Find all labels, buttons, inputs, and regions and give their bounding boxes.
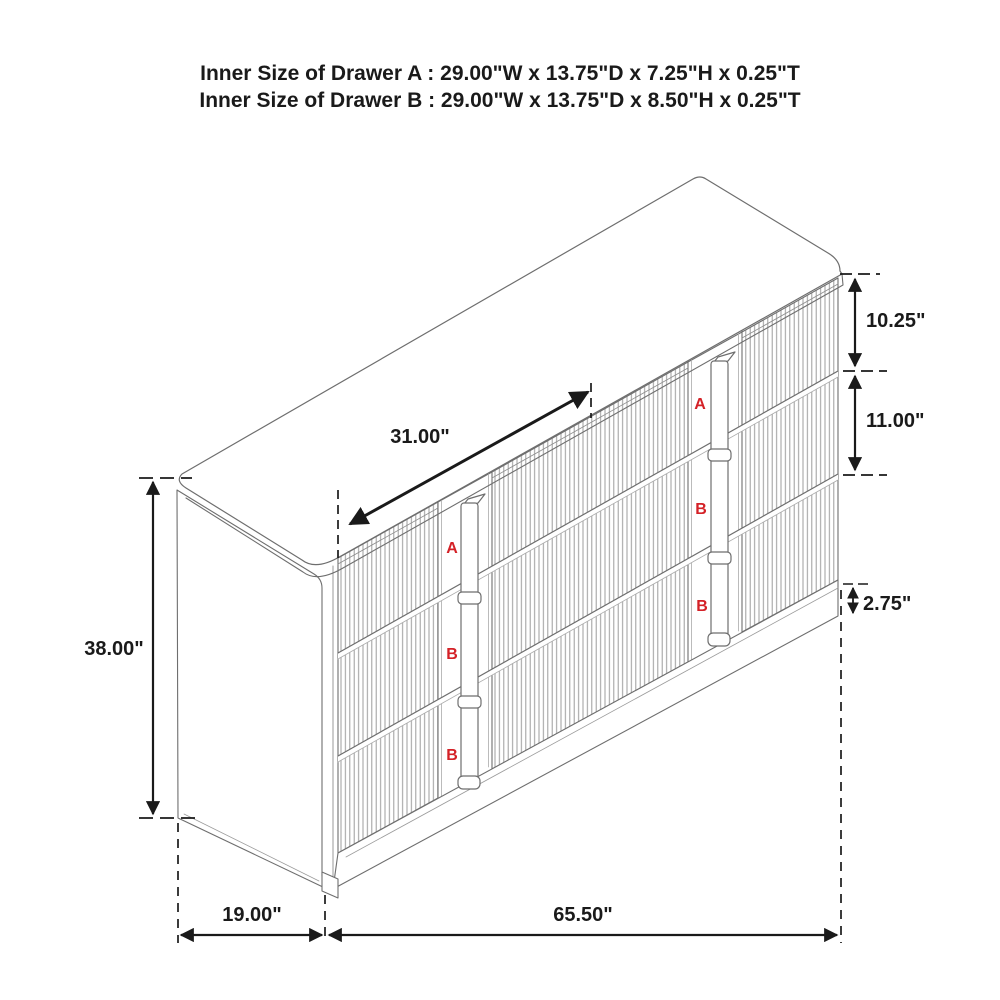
right-drawer-a-label: A [694, 396, 706, 413]
dresser-dimension-diagram: A B B A B B [0, 0, 1000, 1000]
top-drawer-height-label: 10.25" [866, 310, 926, 332]
depth-label: 19.00" [222, 904, 282, 926]
left-handle-joint-2 [458, 696, 481, 708]
base-height-label: 2.75" [863, 593, 911, 615]
lower-drawer-height-label: 11.00" [866, 410, 924, 432]
drawer-width-label: 31.00" [390, 426, 450, 448]
left-drawer-a-label: A [446, 540, 458, 557]
title-line-2: Inner Size of Drawer B : 29.00"W x 13.75… [199, 89, 800, 112]
left-handle-joint-1 [458, 592, 481, 604]
drawer-bank-right [742, 278, 838, 632]
left-drawer-b1-label: B [446, 646, 458, 663]
left-drawer-b2-label: B [446, 747, 458, 764]
dresser-drawing: A B B A B B [177, 177, 843, 898]
right-handle-joint-1 [708, 449, 731, 461]
right-handle-end [708, 633, 730, 646]
left-handle-end [458, 776, 480, 789]
drawer-bank-left [338, 502, 438, 853]
right-drawer-b2-label: B [696, 598, 708, 615]
diagram-canvas: A B B A B B [0, 0, 1000, 1000]
overall-height-label: 38.00" [84, 638, 144, 660]
right-handle-joint-2 [708, 552, 731, 564]
title-block: Inner Size of Drawer A : 29.00"W x 13.75… [199, 62, 800, 112]
title-line-1: Inner Size of Drawer A : 29.00"W x 13.75… [200, 62, 800, 85]
right-drawer-b1-label: B [695, 501, 707, 518]
overall-width-label: 65.50" [553, 904, 613, 926]
